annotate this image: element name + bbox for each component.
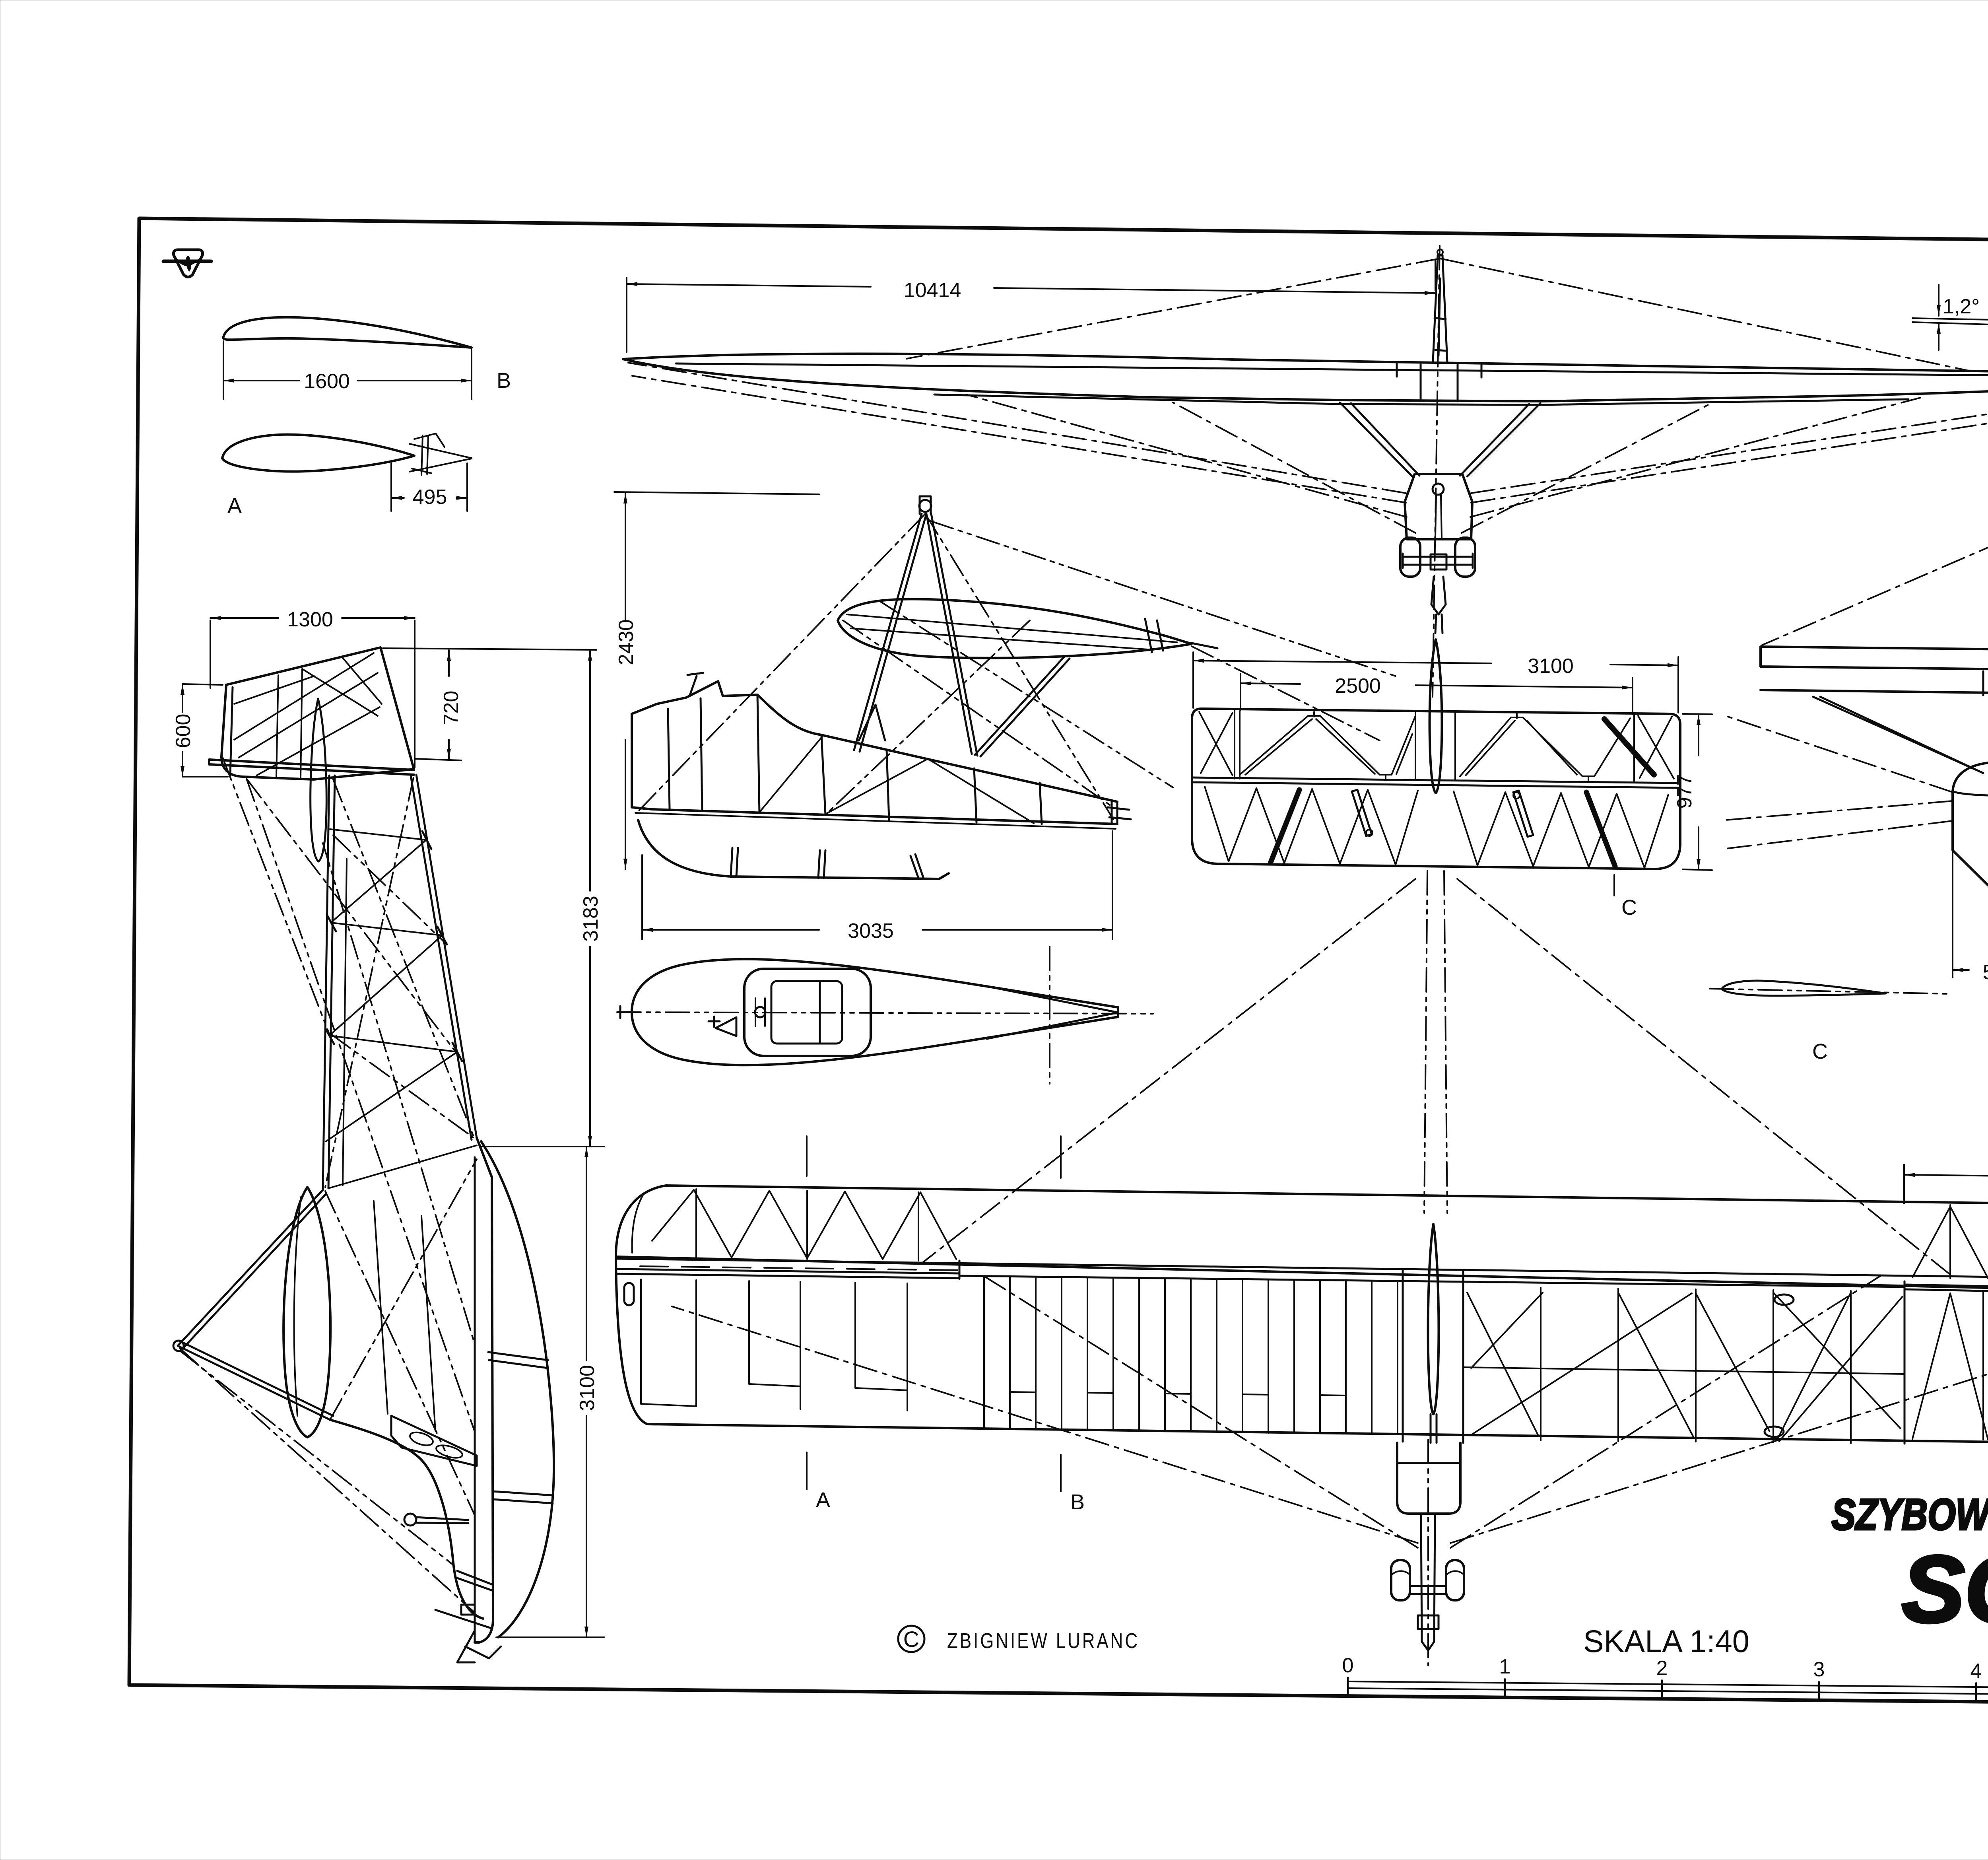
- svg-text:C: C: [1812, 1040, 1828, 1063]
- svg-text:C: C: [903, 1627, 919, 1652]
- svg-text:SKALA 1:40: SKALA 1:40: [1583, 1623, 1749, 1659]
- svg-text:720: 720: [440, 691, 463, 725]
- svg-text:1: 1: [1499, 1655, 1511, 1678]
- svg-text:590: 590: [1983, 961, 1988, 984]
- svg-text:1600: 1600: [304, 370, 350, 393]
- svg-text:4: 4: [1971, 1660, 1982, 1683]
- svg-text:3035: 3035: [848, 919, 894, 943]
- svg-text:2: 2: [1656, 1657, 1668, 1680]
- svg-text:2500: 2500: [1335, 674, 1381, 698]
- svg-text:2430: 2430: [615, 619, 638, 665]
- svg-text:SG-38: SG-38: [1902, 1537, 1988, 1642]
- svg-text:B: B: [497, 369, 511, 393]
- svg-text:SZYBOWIEC SZKOLNY: SZYBOWIEC SZKOLNY: [1832, 1490, 1988, 1539]
- svg-text:10414: 10414: [904, 279, 961, 302]
- svg-text:977: 977: [1673, 774, 1696, 809]
- svg-text:1300: 1300: [287, 608, 333, 631]
- svg-text:3100: 3100: [576, 1365, 599, 1411]
- svg-text:495: 495: [413, 486, 447, 509]
- svg-text:0: 0: [1342, 1654, 1354, 1677]
- svg-text:1,2°: 1,2°: [1943, 295, 1980, 318]
- svg-text:600: 600: [172, 714, 195, 748]
- svg-text:A: A: [227, 494, 242, 518]
- svg-text:C: C: [1621, 896, 1637, 919]
- svg-text:3183: 3183: [579, 896, 602, 942]
- svg-text:3: 3: [1813, 1658, 1825, 1681]
- svg-text:B: B: [1070, 1490, 1085, 1514]
- svg-text:3100: 3100: [1528, 655, 1574, 678]
- svg-text:ZBIGNIEW LURANC: ZBIGNIEW LURANC: [947, 1629, 1140, 1653]
- svg-text:A: A: [816, 1488, 830, 1512]
